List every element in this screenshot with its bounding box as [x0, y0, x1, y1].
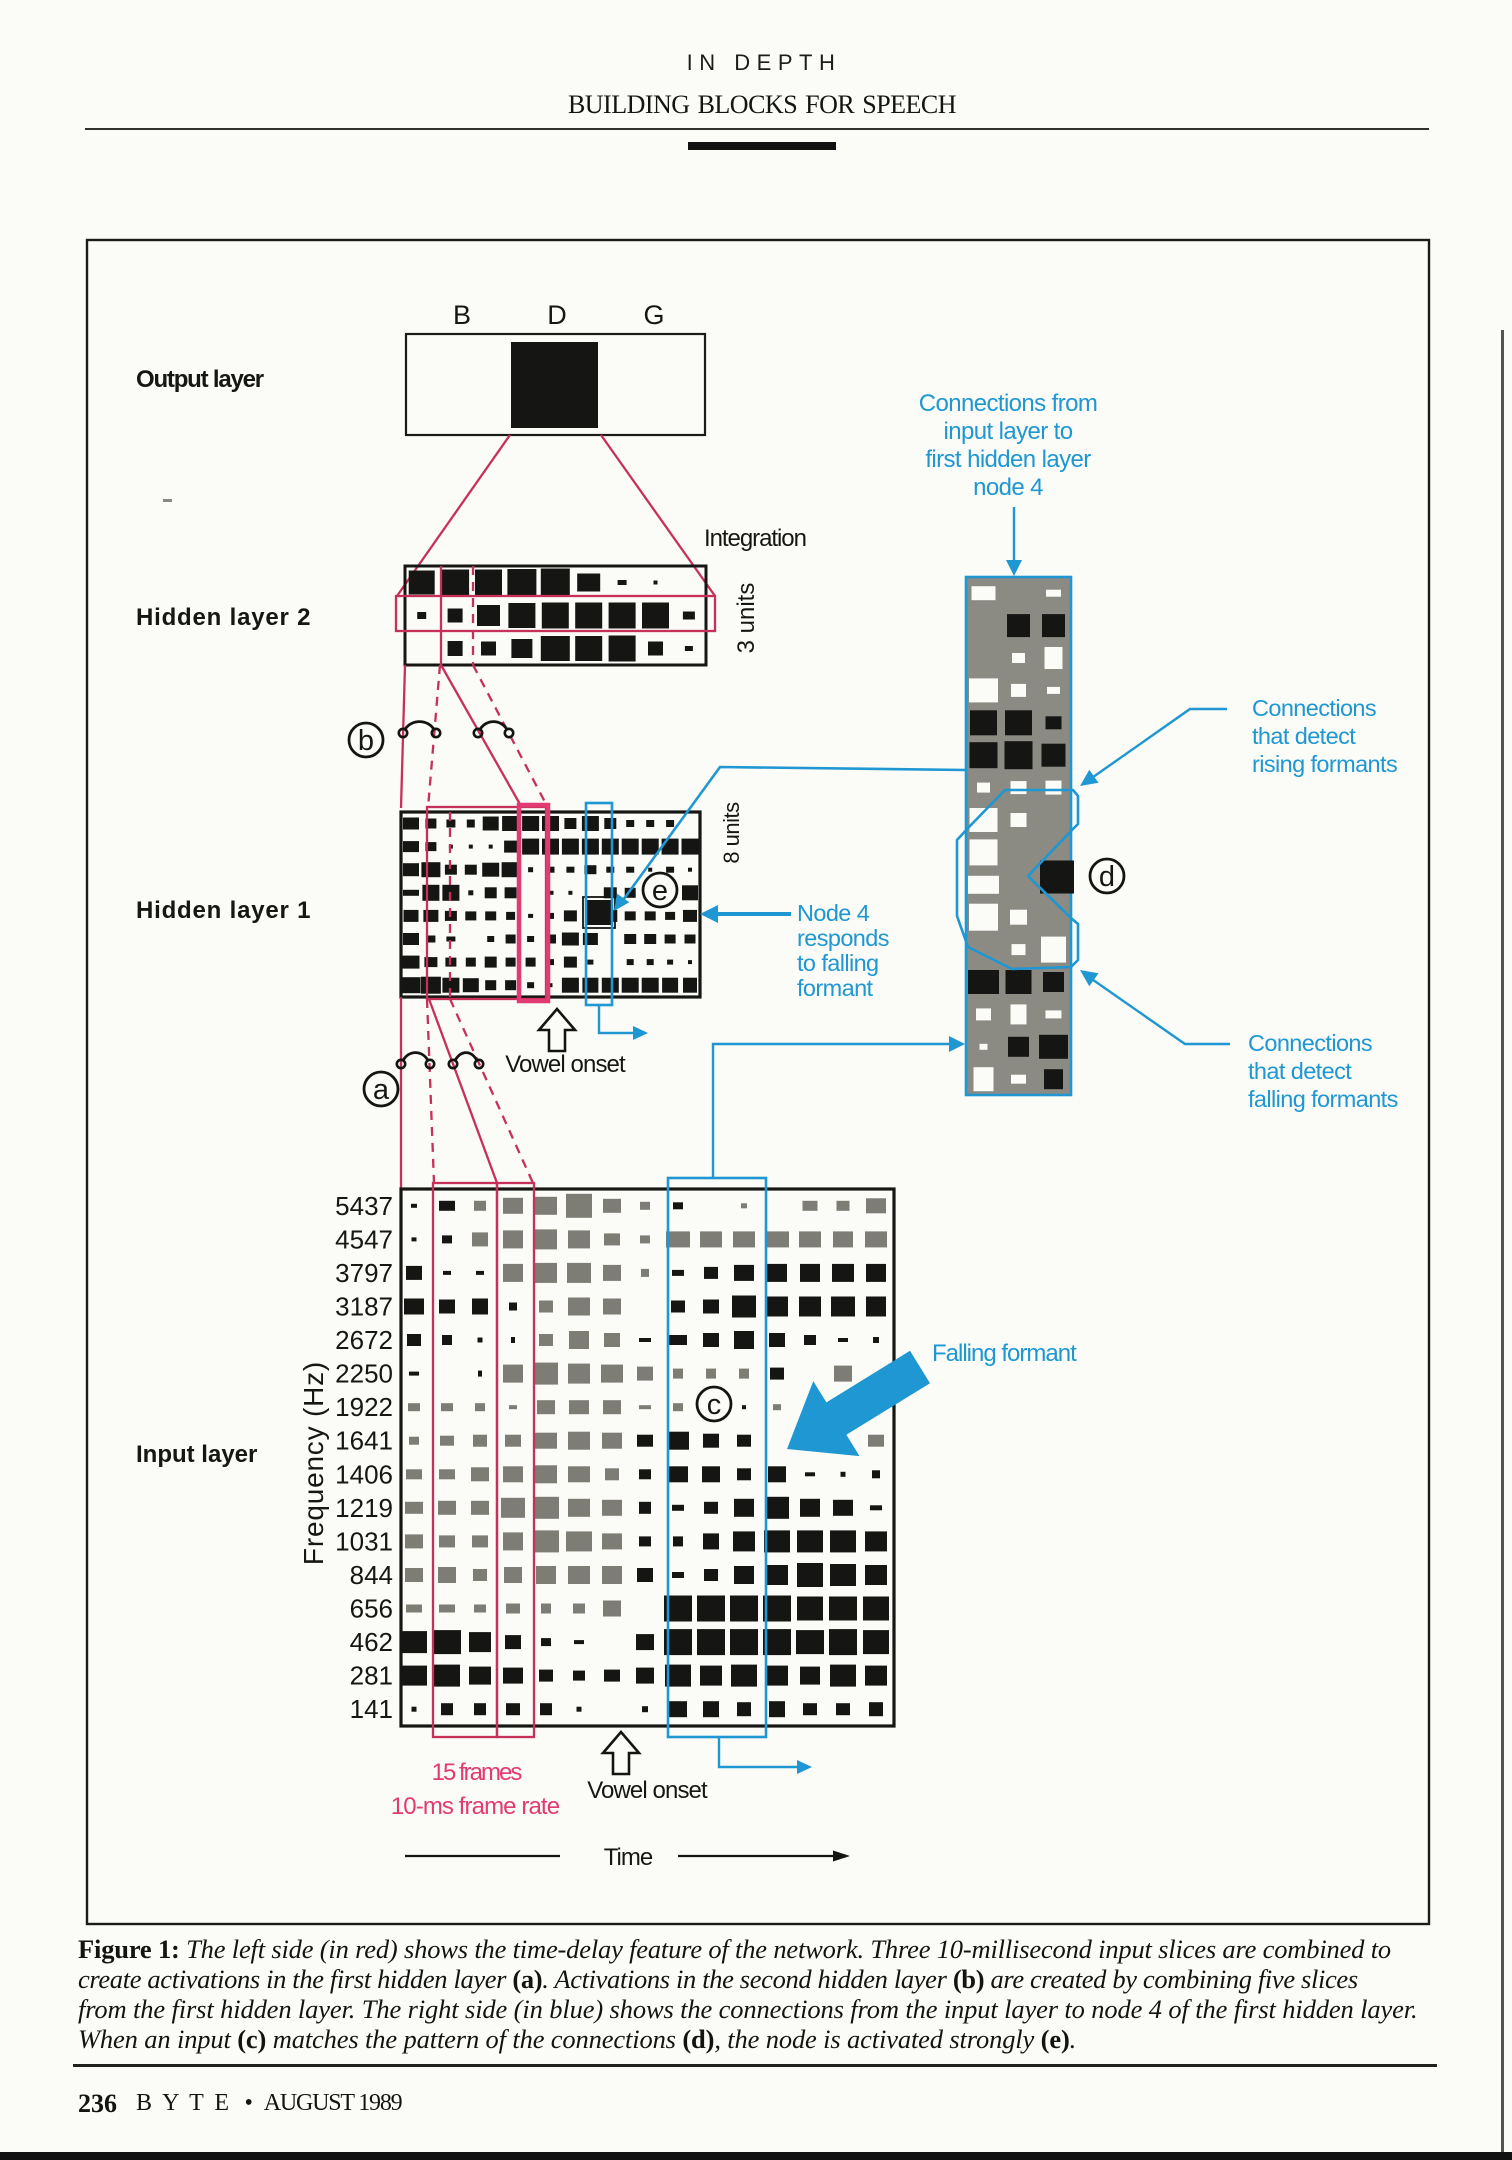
svg-text:rising formants: rising formants	[1252, 751, 1397, 777]
svg-text:Input layer: Input layer	[136, 1441, 257, 1468]
svg-text:responds: responds	[797, 925, 889, 951]
svg-text:15 frames: 15 frames	[432, 1759, 523, 1786]
svg-text:Hidden layer 2: Hidden layer 2	[136, 604, 311, 631]
svg-text:10-ms frame rate: 10-ms frame rate	[391, 1793, 560, 1820]
svg-text:Hidden layer 1: Hidden layer 1	[136, 897, 311, 924]
svg-text:Frequency (Hz): Frequency (Hz)	[298, 1361, 329, 1565]
svg-text:8 units: 8 units	[719, 802, 744, 864]
svg-text:4547: 4547	[335, 1224, 393, 1254]
svg-text:b: b	[358, 725, 374, 757]
svg-text:Integration: Integration	[704, 525, 806, 552]
svg-text:e: e	[652, 875, 668, 907]
svg-text:1406: 1406	[335, 1459, 393, 1489]
svg-text:5437: 5437	[335, 1191, 393, 1221]
svg-text:141: 141	[350, 1694, 393, 1724]
svg-text:first hidden layer: first hidden layer	[925, 446, 1091, 473]
svg-text:Connections: Connections	[1248, 1030, 1372, 1056]
svg-text:1031: 1031	[335, 1526, 393, 1556]
svg-text:falling formants: falling formants	[1248, 1086, 1398, 1112]
svg-text:Vowel onset: Vowel onset	[505, 1051, 626, 1078]
svg-text:Time: Time	[604, 1844, 653, 1871]
svg-text:1219: 1219	[335, 1493, 393, 1523]
svg-text:c: c	[707, 1389, 722, 1421]
svg-text:a: a	[373, 1074, 390, 1106]
svg-text:Connections from: Connections from	[919, 390, 1098, 417]
svg-text:3187: 3187	[335, 1291, 393, 1321]
svg-text:462: 462	[350, 1627, 393, 1657]
svg-text:that detect: that detect	[1252, 723, 1356, 749]
svg-text:2672: 2672	[335, 1325, 393, 1355]
svg-text:Connections: Connections	[1252, 695, 1376, 721]
svg-text:1922: 1922	[335, 1392, 393, 1422]
svg-text:formant: formant	[797, 975, 874, 1001]
svg-text:Output layer: Output layer	[136, 366, 264, 393]
svg-text:input layer to: input layer to	[943, 418, 1072, 445]
svg-text:Falling formant: Falling formant	[932, 1340, 1077, 1367]
svg-text:Vowel onset: Vowel onset	[587, 1777, 708, 1804]
svg-text:B: B	[453, 300, 471, 330]
svg-text:2250: 2250	[335, 1359, 393, 1389]
svg-text:3797: 3797	[335, 1258, 393, 1288]
svg-text:that detect: that detect	[1248, 1058, 1352, 1084]
svg-text:3 units: 3 units	[733, 583, 760, 654]
svg-text:1641: 1641	[335, 1426, 393, 1456]
svg-text:to falling: to falling	[797, 950, 879, 976]
svg-text:656: 656	[350, 1594, 393, 1624]
svg-text:d: d	[1099, 861, 1115, 893]
svg-text:node 4: node 4	[973, 474, 1043, 501]
svg-text:844: 844	[350, 1560, 393, 1590]
svg-text:281: 281	[350, 1661, 393, 1691]
svg-text:G: G	[643, 300, 664, 330]
svg-text:D: D	[547, 300, 567, 330]
svg-text:Node 4: Node 4	[797, 900, 870, 926]
